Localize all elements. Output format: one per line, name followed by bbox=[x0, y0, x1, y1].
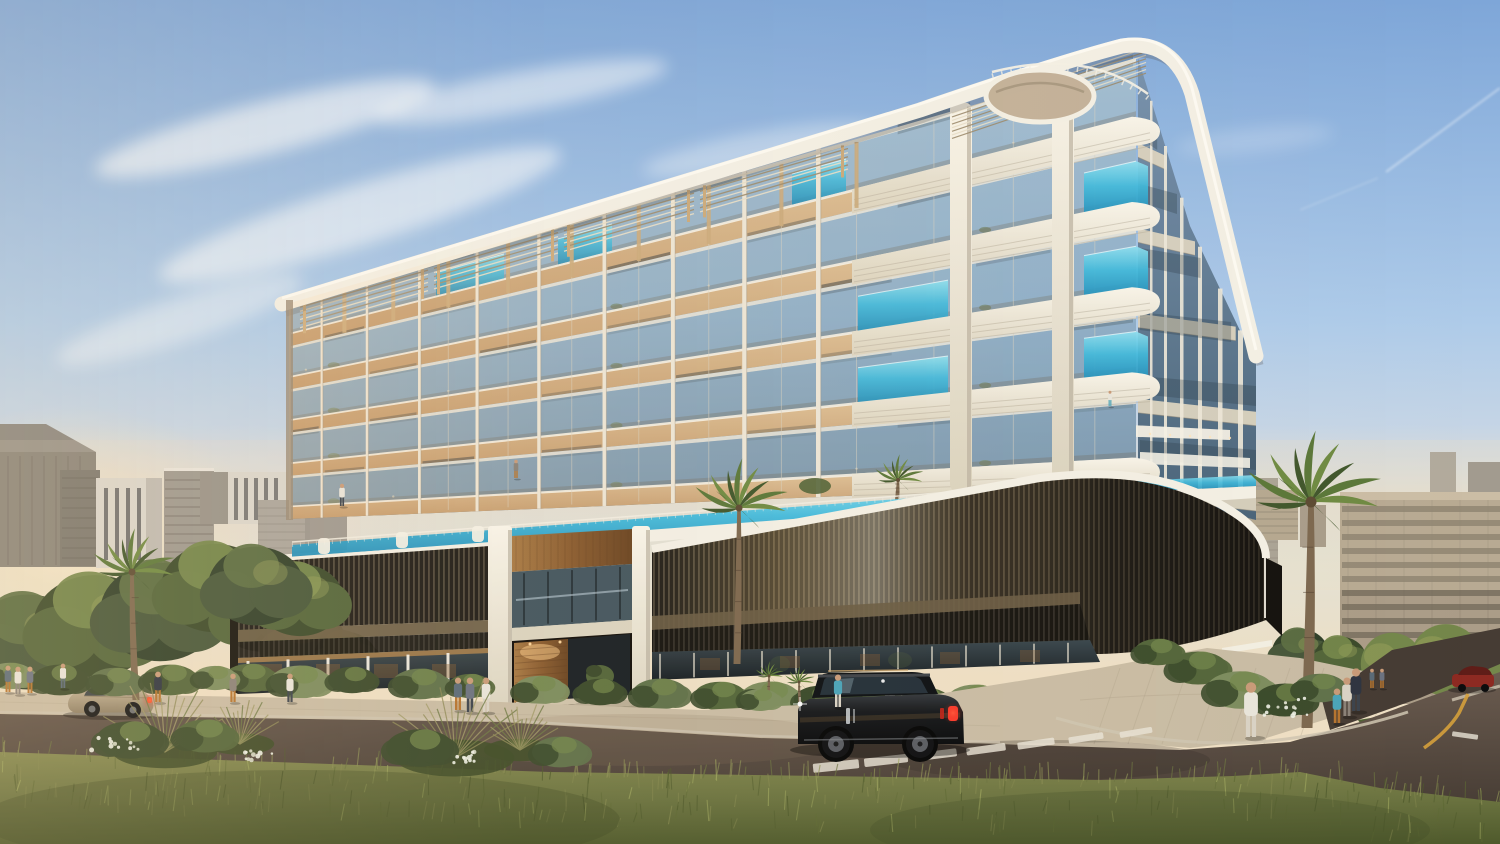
architectural-render bbox=[0, 0, 1500, 844]
warm-grade bbox=[0, 0, 1500, 844]
scene-canvas bbox=[0, 0, 1500, 844]
